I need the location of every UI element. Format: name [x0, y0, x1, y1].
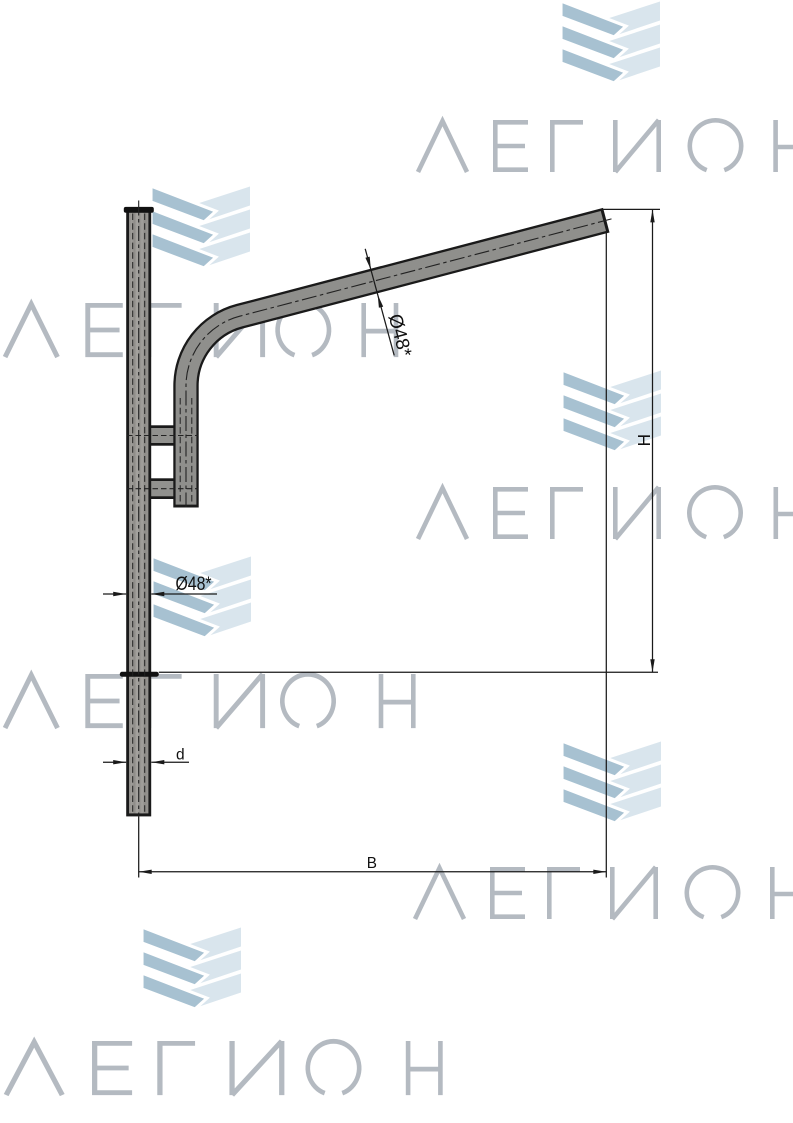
svg-text:H: H: [633, 434, 654, 446]
svg-text:Ø48*: Ø48*: [176, 572, 212, 594]
svg-text:B: B: [367, 855, 377, 872]
svg-text:d: d: [176, 746, 185, 763]
